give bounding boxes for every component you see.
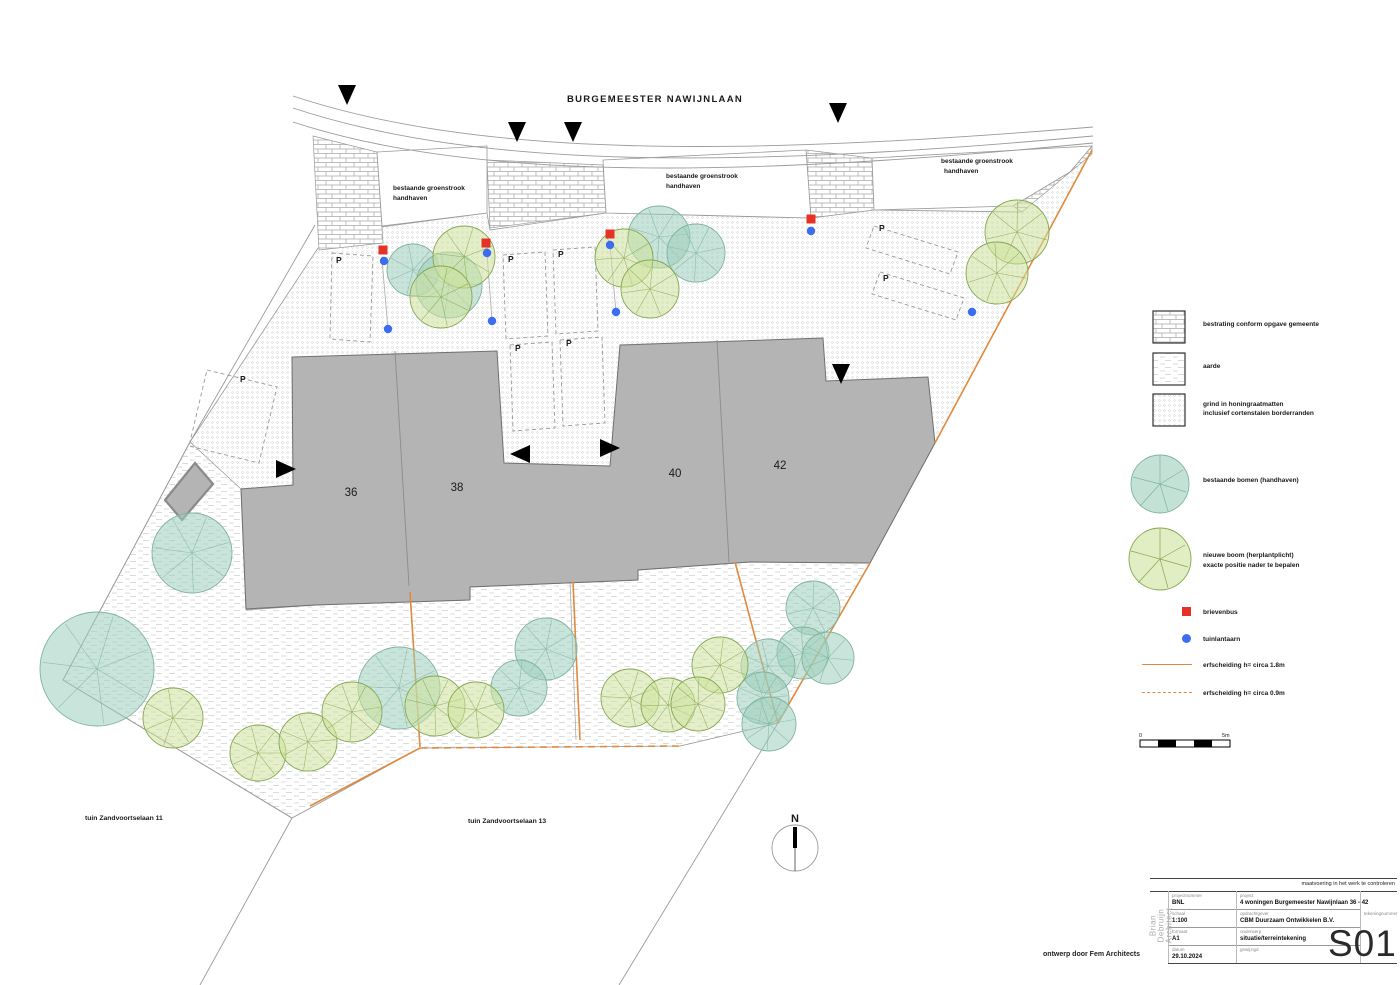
- field-schaal-label: schaal: [1172, 911, 1185, 916]
- parking-label: P: [240, 374, 246, 384]
- lantern-swatch: [1182, 634, 1191, 643]
- dashed-line-swatch: [1142, 692, 1192, 693]
- aarde-pattern-swatch: [1152, 352, 1186, 386]
- legend-label: bestaande bomen (handhaven): [1203, 476, 1299, 485]
- entrance-arrow-down-icon: [508, 122, 526, 142]
- garden-lantern-marker: [488, 317, 496, 325]
- legend-label: grind in honingraatmatten: [1203, 400, 1284, 409]
- green-strip-middle: [603, 150, 811, 218]
- tuin-label-left: tuin Zandvoortselaan 11: [85, 815, 163, 822]
- field-datum-label: datum: [1172, 947, 1185, 952]
- field-projectnummer-value: BNL: [1172, 900, 1184, 906]
- new-tree: [230, 725, 286, 781]
- svg-text:bestaande groenstrook: bestaande groenstrook: [666, 173, 738, 180]
- legend: bestrating conform opgave gemeente aarde…: [1140, 0, 1400, 985]
- brick-pattern-swatch: [1152, 310, 1186, 344]
- field-project-value: 4 woningen Burgemeester Nawijnlaan 36 - …: [1240, 900, 1368, 906]
- titleblock-note: maatvoering in het werk te controleren: [1242, 881, 1395, 887]
- legend-label: bestrating conform opgave gemeente: [1203, 320, 1319, 329]
- parking-label: P: [515, 343, 521, 353]
- field-schaal-value: 1:100: [1172, 918, 1187, 924]
- sheet-number: S01: [1328, 923, 1397, 965]
- parking-label: P: [336, 255, 342, 265]
- tuin-label-right: tuin Zandvoortselaan 13: [468, 818, 546, 825]
- north-arrow: N: [772, 813, 818, 871]
- svg-text:bestaande groenstrook: bestaande groenstrook: [941, 158, 1013, 165]
- garden-lantern-marker: [968, 308, 976, 316]
- house-number-38: 38: [451, 482, 464, 494]
- legend-label: nieuwe boom (herplantplicht): [1203, 551, 1294, 560]
- field-projectnummer-label: projectnummer: [1172, 893, 1202, 898]
- new-tree: [322, 682, 382, 742]
- field-onderwerp-value: situatie/terreintekening: [1240, 936, 1306, 942]
- legend-label: brievenbus: [1203, 608, 1238, 617]
- street-name: BURGEMEESTER NAWIJNLAAN: [567, 94, 743, 105]
- legend-label-line2: inclusief cortenstalen borderranden: [1203, 409, 1314, 418]
- existing-tree-swatch: [1128, 452, 1192, 516]
- new-tree: [448, 682, 504, 738]
- field-gewijzigd-label: gewijzigd: [1240, 947, 1259, 952]
- solid-line-swatch: [1142, 664, 1192, 665]
- existing-tree: [742, 697, 796, 751]
- svg-text:handhaven: handhaven: [393, 195, 427, 202]
- field-formaat-value: A1: [1172, 936, 1180, 942]
- svg-text:handhaven: handhaven: [944, 168, 978, 175]
- designer-credit: ontwerp door Fem Architects: [1000, 951, 1140, 958]
- field-opdrachtgever-value: CBM Duurzaam Ontwikkelen B.V.: [1240, 918, 1334, 924]
- new-tree: [671, 677, 725, 731]
- parking-label: P: [883, 273, 889, 283]
- new-tree: [621, 260, 679, 318]
- existing-tree: [667, 224, 725, 282]
- legend-label: aarde: [1203, 362, 1220, 371]
- svg-text:bestaande groenstrook: bestaande groenstrook: [393, 185, 465, 192]
- entrance-arrow-down-icon: [338, 85, 356, 105]
- mailbox-marker: [606, 230, 615, 239]
- parking-label: P: [879, 223, 885, 233]
- mailbox-marker: [379, 246, 388, 255]
- north-label: N: [791, 813, 799, 825]
- garden-lantern-marker: [612, 308, 620, 316]
- garden-lantern-marker: [606, 241, 614, 249]
- mailbox-marker: [482, 239, 491, 248]
- brick-paving-mid-right: [806, 150, 874, 218]
- new-tree: [410, 266, 472, 328]
- field-opdrachtgever-label: opdrachtgever: [1240, 911, 1269, 916]
- field-project-label: project: [1240, 893, 1254, 898]
- new-tree: [966, 242, 1028, 304]
- garden-lantern-marker: [483, 249, 491, 257]
- existing-tree: [786, 581, 840, 635]
- svg-text:handhaven: handhaven: [666, 183, 700, 190]
- grind-pattern-swatch: [1152, 393, 1186, 427]
- garden-lantern-marker: [384, 325, 392, 333]
- entrance-arrow-down-icon: [829, 103, 847, 123]
- legend-label: erfscheiding h= circa 0.9m: [1203, 689, 1285, 698]
- garden-lantern-marker: [807, 227, 815, 235]
- garden-lantern-marker: [380, 257, 388, 265]
- parking-label: P: [508, 254, 514, 264]
- field-formaat-label: formaat: [1172, 929, 1187, 934]
- house-number-42: 42: [774, 460, 787, 472]
- legend-label: erfscheiding h= circa 1.8m: [1203, 661, 1285, 670]
- existing-tree: [40, 612, 154, 726]
- house-number-36: 36: [345, 487, 358, 499]
- new-tree-swatch: [1126, 525, 1194, 593]
- parking-label: P: [566, 338, 572, 348]
- legend-label: tuinlantaarn: [1203, 635, 1240, 644]
- legend-label-line2: exacte positie nader te bepalen: [1203, 561, 1299, 570]
- mailbox-swatch: [1182, 607, 1191, 616]
- house-number-40: 40: [669, 468, 682, 480]
- existing-tree: [152, 513, 232, 593]
- mailbox-marker: [807, 215, 816, 224]
- parking-label: P: [558, 249, 564, 259]
- field-tekeningnummer-label: tekeningnummer: [1364, 911, 1398, 916]
- entrance-arrow-down-icon: [564, 122, 582, 142]
- field-onderwerp-label: onderwerp: [1240, 929, 1261, 934]
- title-block: maatvoering in het werk te controleren B…: [1150, 875, 1397, 975]
- site-plan-sheet: PPPPPPPP BURGEMEESTER NAWIJNLAAN bestaan…: [0, 0, 1400, 985]
- existing-tree: [802, 632, 854, 684]
- new-tree: [143, 688, 203, 748]
- brick-paving-left-path: [313, 136, 383, 250]
- field-datum-value: 29.10.2024: [1172, 954, 1202, 960]
